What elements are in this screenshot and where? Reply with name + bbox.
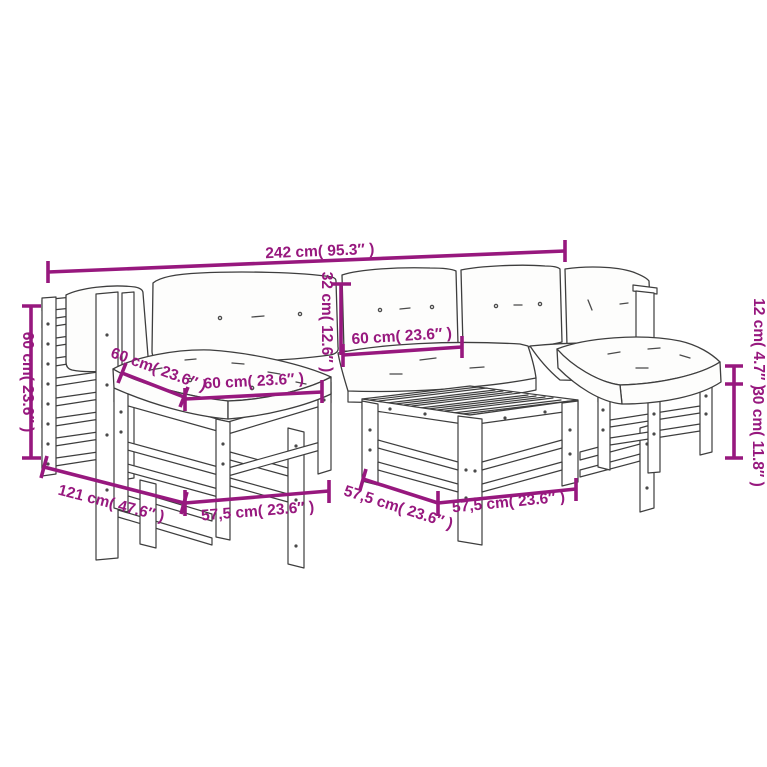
dim-cushion-thickness: 12 cm( 4.7″ ) — [725, 298, 767, 390]
table-right-leg — [562, 401, 578, 486]
back-cushion-3 — [461, 265, 562, 348]
diagram-canvas: 242 cm( 95.3″ ) 60 cm( 23.6″ ) 32 cm( 12… — [0, 0, 767, 767]
dim-back-cushion-height-label: 32 cm( 12.6″ ) — [318, 272, 335, 372]
furniture-line-art — [42, 265, 721, 568]
dim-stool-height-label: 30 cm( 11.8″ ) — [749, 387, 766, 487]
dim-cushion-thickness-label: 12 cm( 4.7″ ) — [750, 298, 767, 390]
table-front-leg — [458, 416, 482, 545]
furniture-dimension-diagram: 242 cm( 95.3″ ) 60 cm( 23.6″ ) 32 cm( 12… — [0, 0, 767, 767]
back-cushion-1 — [152, 272, 338, 362]
dim-side-height-label: 60 cm( 23.6″ ) — [19, 332, 36, 432]
coffee-table — [362, 386, 578, 545]
dim-side-height: 60 cm( 23.6″ ) — [19, 306, 41, 458]
footstool-cushion — [557, 337, 721, 404]
dim-stool-height: 30 cm( 11.8″ ) — [725, 384, 766, 487]
